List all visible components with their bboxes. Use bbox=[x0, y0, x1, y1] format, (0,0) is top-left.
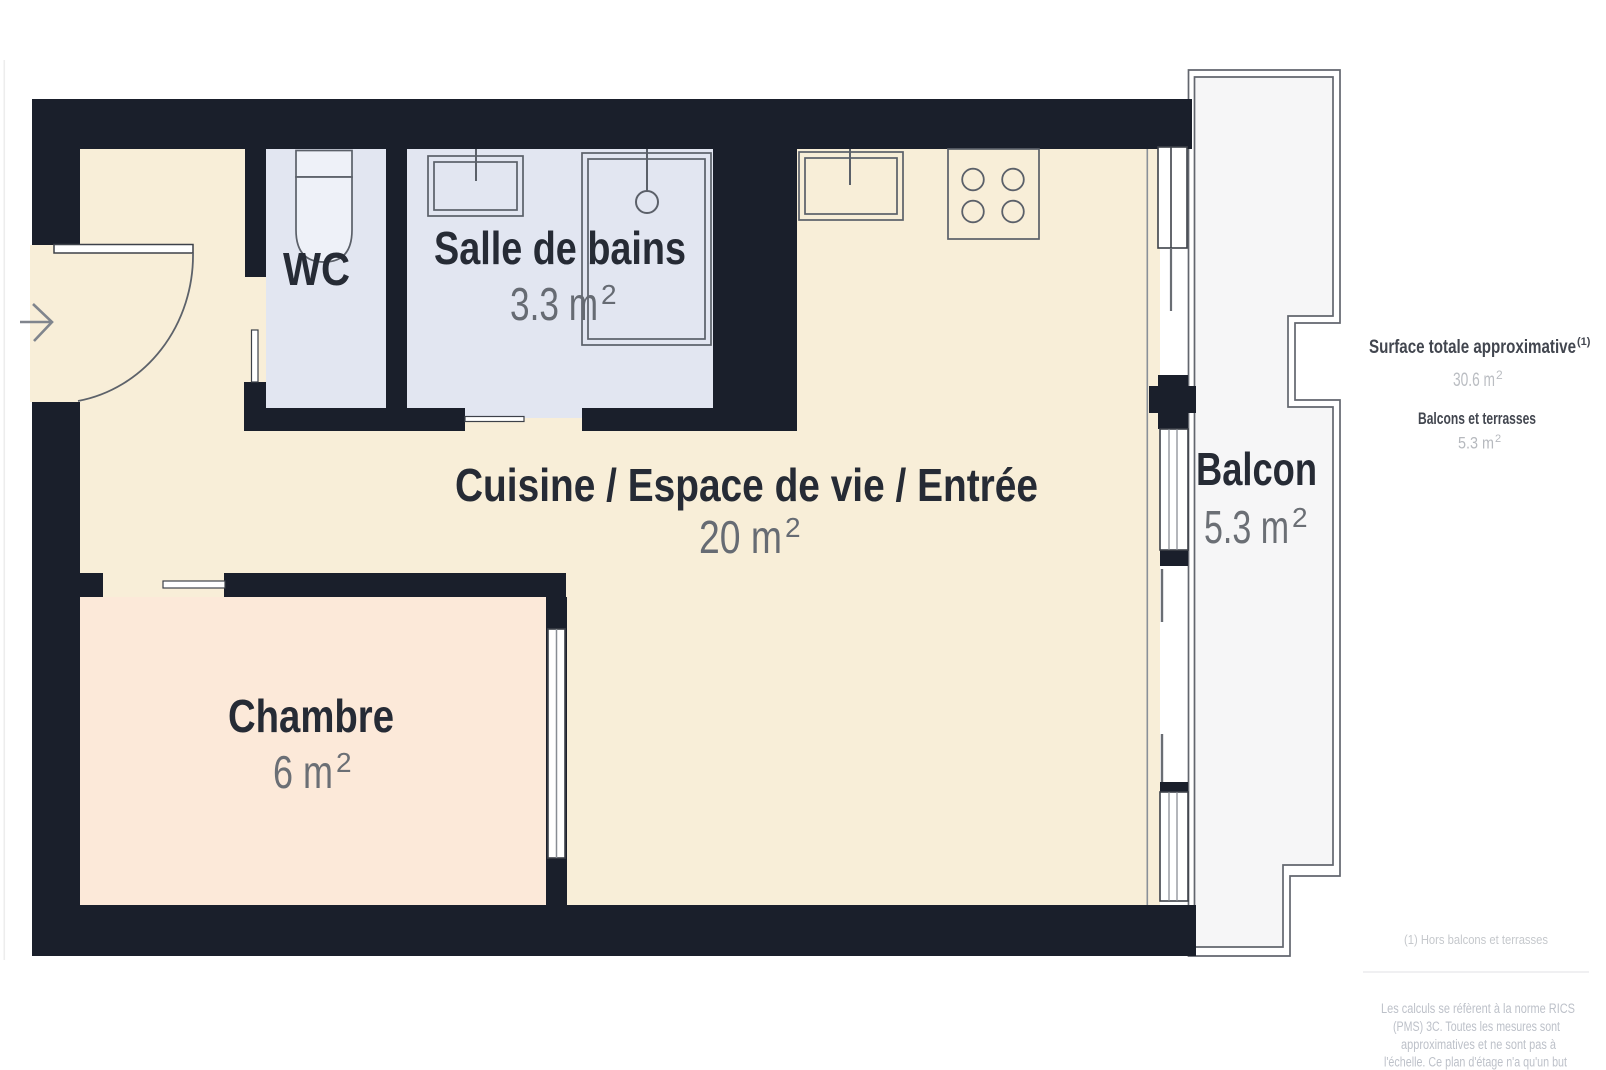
svg-text:2: 2 bbox=[785, 512, 801, 543]
svg-text:approximatives et ne sont pas: approximatives et ne sont pas à bbox=[1401, 1037, 1556, 1052]
svg-text:5.3 m: 5.3 m bbox=[1458, 434, 1494, 453]
svg-text:(PMS) 3C. Toutes les mesures s: (PMS) 3C. Toutes les mesures sont bbox=[1393, 1019, 1560, 1034]
svg-text:2: 2 bbox=[1495, 433, 1501, 445]
svg-text:Balcon: Balcon bbox=[1196, 443, 1317, 495]
svg-text:Salle de bains: Salle de bains bbox=[434, 222, 686, 274]
svg-text:6 m: 6 m bbox=[273, 746, 333, 798]
svg-text:2: 2 bbox=[1292, 502, 1308, 533]
svg-text:20 m: 20 m bbox=[699, 511, 782, 563]
svg-text:Les calculs se réfèrent à la n: Les calculs se réfèrent à la norme RICS bbox=[1381, 1001, 1575, 1016]
svg-text:Surface totale approximative: Surface totale approximative bbox=[1369, 336, 1576, 358]
svg-text:Cuisine / Espace de vie / Entr: Cuisine / Espace de vie / Entrée bbox=[455, 459, 1038, 511]
svg-text:30.6 m: 30.6 m bbox=[1453, 370, 1495, 391]
svg-text:l'échelle. Ce plan d'étage n'a: l'échelle. Ce plan d'étage n'a qu'un but bbox=[1384, 1055, 1567, 1070]
svg-text:Balcons et terrasses: Balcons et terrasses bbox=[1418, 409, 1536, 428]
svg-text:(1) Hors balcons et terrasses: (1) Hors balcons et terrasses bbox=[1404, 932, 1548, 947]
svg-text:2: 2 bbox=[601, 279, 617, 310]
svg-text:WC: WC bbox=[283, 243, 350, 295]
svg-text:5.3 m: 5.3 m bbox=[1204, 501, 1289, 553]
svg-text:(1): (1) bbox=[1577, 336, 1591, 348]
svg-text:Chambre: Chambre bbox=[228, 690, 394, 742]
svg-text:3.3 m: 3.3 m bbox=[510, 278, 598, 330]
svg-text:2: 2 bbox=[336, 747, 352, 778]
svg-text:2: 2 bbox=[1496, 368, 1503, 382]
